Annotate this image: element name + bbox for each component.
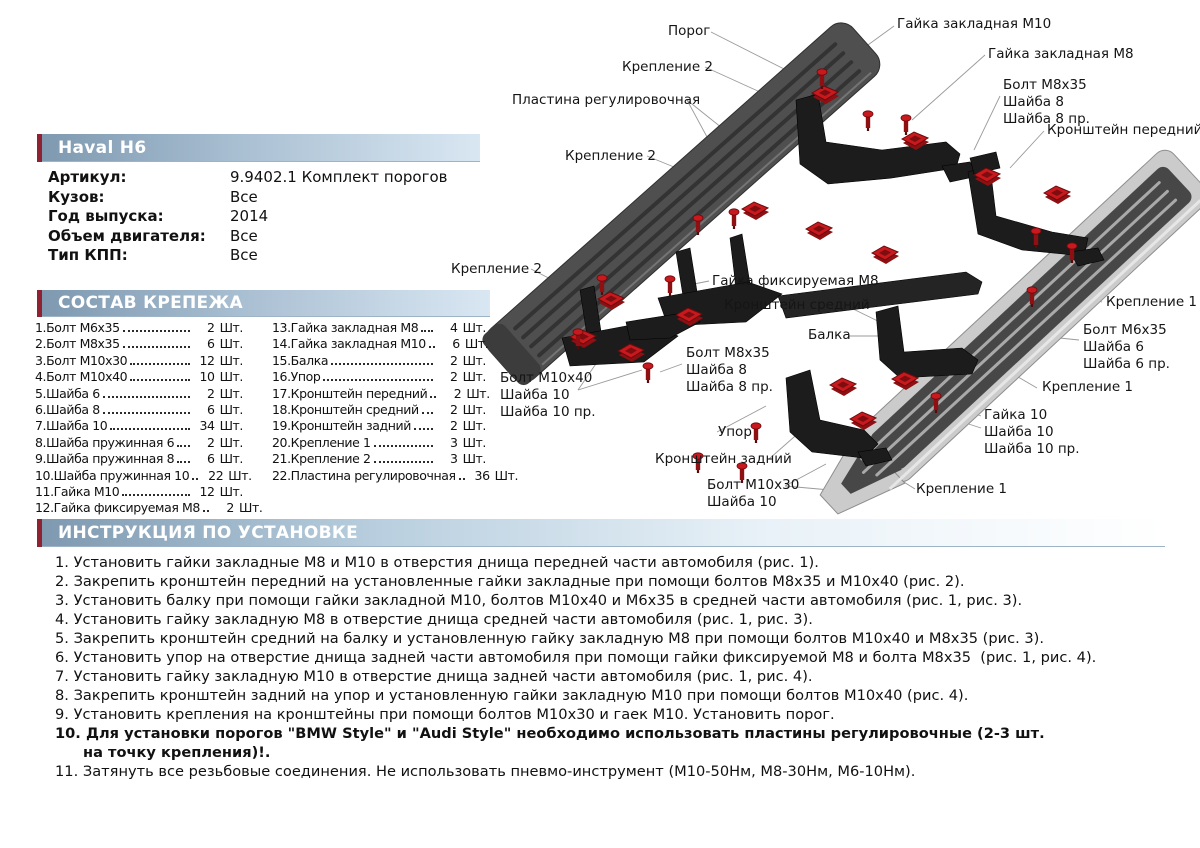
diagram-callout: Болт М6х35 [1083, 323, 1167, 338]
fastener-row: 15.Балка2Шт. [272, 353, 486, 369]
diagram-callout: Крепление 2 [451, 262, 542, 277]
diagram-callout: Балка [808, 328, 851, 343]
diagram-callout: Болт М8х35 [1003, 78, 1087, 93]
diagram-callout: Кронштейн средний [724, 298, 870, 313]
instruction-step: 5. Закрепить кронштейн средний на балку … [37, 629, 1167, 648]
diagram-callout: Порог [668, 24, 710, 39]
diagram-callout: Кронштейн передний [1047, 123, 1200, 138]
instruction-step: 2. Закрепить кронштейн передний на устан… [37, 572, 1167, 591]
diagram-callout: Гайка закладная М10 [897, 17, 1051, 32]
spec-row: Кузов:Все [48, 188, 447, 208]
diagram-callout: Кронштейн задний [655, 452, 792, 467]
diagram-callout: Шайба 6 [1083, 340, 1144, 355]
instruction-step: 6. Установить упор на отверстие днища за… [37, 648, 1167, 667]
diagram-callout: Шайба 8 [686, 363, 747, 378]
diagram-callout: Шайба 10 [707, 495, 777, 510]
diagram-callout: Болт М10х40 [500, 371, 592, 386]
fasteners-column-left: 1.Болт М6х352Шт. 2.Болт М8х356Шт. 3.Болт… [35, 320, 243, 517]
fastener-row: 7.Шайба 1034Шт. [35, 418, 243, 434]
instruction-step: 4. Установить гайку закладную М8 в отвер… [37, 610, 1167, 629]
diagram-callout: Крепление 1 [916, 482, 1007, 497]
instruction-step: 10. Для установки порогов "BMW Style" и … [37, 724, 1167, 762]
spec-row: Объем двигателя:Все [48, 227, 447, 247]
fastener-row: 11.Гайка М1012Шт. [35, 484, 243, 500]
product-title-bar: Haval H6 [37, 134, 480, 162]
diagram-callout: Крепление 1 [1042, 380, 1133, 395]
spec-row: Тип КПП:Все [48, 246, 447, 266]
diagram-callout: Гайка фиксируемая М8 [712, 274, 879, 289]
diagram-callout: Крепление 2 [565, 149, 656, 164]
instruction-step: 11. Затянуть все резьбовые соединения. Н… [37, 762, 1167, 781]
instruction-sheet: Порог Гайка закладная М10 Крепление 2 Га… [0, 0, 1200, 848]
fastener-row: 3.Болт М10х3012Шт. [35, 353, 243, 369]
instructions-title: ИНСТРУКЦИЯ ПО УСТАНОВКЕ [58, 523, 358, 543]
diagram-callout: Болт М8х35 [686, 346, 770, 361]
diagram-callout: Шайба 6 пр. [1083, 357, 1170, 372]
spec-row: Артикул:9.9402.1 Комплект порогов [48, 168, 447, 188]
fastener-row: 5.Шайба 62Шт. [35, 386, 243, 402]
fastener-row: 17.Кронштейн передний2Шт. [272, 386, 486, 402]
fasteners-title: СОСТАВ КРЕПЕЖА [58, 293, 243, 313]
diagram-callout: Упор [718, 425, 752, 440]
fastener-row: 20.Крепление 13Шт. [272, 435, 486, 451]
fastener-row: 2.Болт М8х356Шт. [35, 336, 243, 352]
diagram-callout: Шайба 10 [500, 388, 570, 403]
fastener-row: 14.Гайка закладная М106Шт. [272, 336, 486, 352]
fastener-row: 12.Гайка фиксируемая М82Шт. [35, 500, 243, 516]
diagram-callout: Шайба 10 [984, 425, 1054, 440]
fastener-row: 6.Шайба 86Шт. [35, 402, 243, 418]
diagram-callout: Гайка 10 [984, 408, 1047, 423]
fastener-row: 4.Болт М10х4010Шт. [35, 369, 243, 385]
fasteners-title-bar: СОСТАВ КРЕПЕЖА [37, 290, 490, 317]
diagram-callout: Крепление 2 [622, 60, 713, 75]
fastener-row: 18.Кронштейн средний2Шт. [272, 402, 486, 418]
instruction-step: 7. Установить гайку закладную М10 в отве… [37, 667, 1167, 686]
fastener-row: 13.Гайка закладная М84Шт. [272, 320, 486, 336]
instruction-step: 9. Установить крепления на кронштейны пр… [37, 705, 1167, 724]
fastener-row: 22.Пластина регулировочная36Шт. [272, 468, 486, 484]
fastener-row: 1.Болт М6х352Шт. [35, 320, 243, 336]
fastener-row: 21.Крепление 23Шт. [272, 451, 486, 467]
diagram-callout: Шайба 8 [1003, 95, 1064, 110]
fastener-row: 9.Шайба пружинная 86Шт. [35, 451, 243, 467]
instruction-step: 3. Установить балку при помощи гайки зак… [37, 591, 1167, 610]
diagram-callout: Гайка закладная М8 [988, 47, 1134, 62]
diagram-callout: Шайба 10 пр. [500, 405, 596, 420]
instructions-list: 1. Установить гайки закладные М8 и М10 в… [37, 553, 1167, 781]
fastener-row: 10.Шайба пружинная 1022Шт. [35, 468, 243, 484]
product-specs: Артикул:9.9402.1 Комплект порогов Кузов:… [48, 168, 447, 266]
fastener-row: 19.Кронштейн задний2Шт. [272, 418, 486, 434]
diagram-callout: Шайба 10 пр. [984, 442, 1080, 457]
fastener-row: 16.Упор2Шт. [272, 369, 486, 385]
page-title: Haval H6 [58, 138, 146, 158]
fasteners-column-right: 13.Гайка закладная М84Шт. 14.Гайка закла… [272, 320, 486, 484]
fastener-row: 8.Шайба пружинная 62Шт. [35, 435, 243, 451]
instruction-step: 1. Установить гайки закладные М8 и М10 в… [37, 553, 1167, 572]
instruction-step: 8. Закрепить кронштейн задний на упор и … [37, 686, 1167, 705]
diagram-callout: Пластина регулировочная [512, 93, 700, 108]
diagram-callout: Шайба 8 пр. [686, 380, 773, 395]
instructions-title-bar: ИНСТРУКЦИЯ ПО УСТАНОВКЕ [37, 519, 1165, 547]
spec-row: Год выпуска:2014 [48, 207, 447, 227]
diagram-callout: Крепление 1 [1106, 295, 1197, 310]
diagram-callout: Болт М10х30 [707, 478, 799, 493]
